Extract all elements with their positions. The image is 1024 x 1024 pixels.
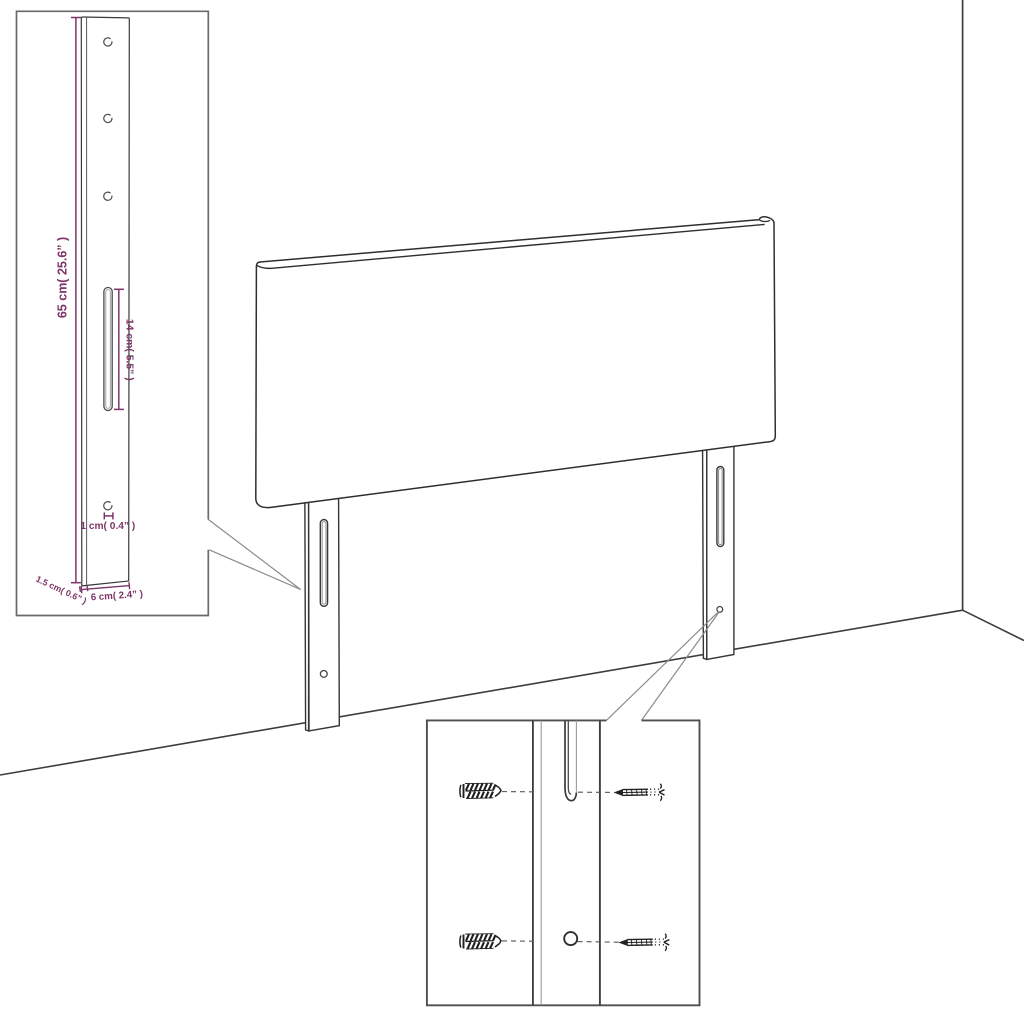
svg-text:1 cm( 0.4” ): 1 cm( 0.4” )	[80, 521, 135, 532]
svg-text:14 cm( 5.5” ): 14 cm( 5.5” )	[123, 319, 134, 381]
svg-text:65 cm( 25.6” ): 65 cm( 25.6” )	[56, 237, 70, 318]
